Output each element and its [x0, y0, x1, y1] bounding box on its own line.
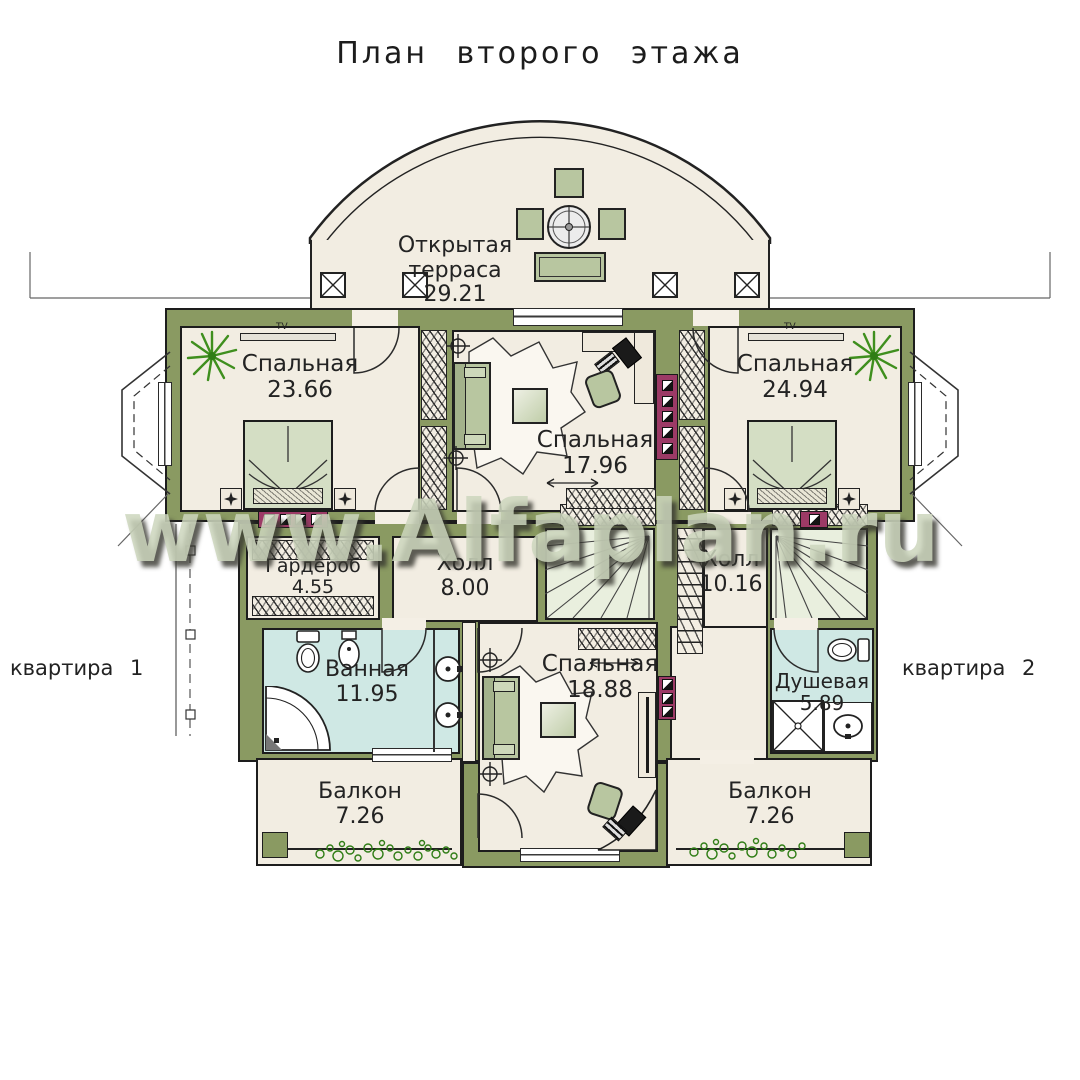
column-icon: [320, 272, 346, 298]
balcony-pier: [844, 832, 870, 858]
sofa-icon: [453, 362, 491, 450]
door-opening: [693, 310, 739, 326]
balcony-plants-icon: [686, 834, 836, 864]
closet-icon: [578, 628, 656, 650]
column-icon: [734, 272, 760, 298]
side-table-icon: [540, 702, 576, 738]
closet-icon: [252, 596, 374, 616]
terrace-chair-icon: [598, 208, 626, 240]
tv-icon: [240, 333, 336, 341]
window: [513, 308, 623, 326]
window: [372, 748, 452, 762]
apartment1-label: квартира 1: [10, 656, 143, 680]
room-label-bedroom-center-top: Спальная 17.96: [495, 428, 695, 480]
closet-icon: [421, 330, 447, 420]
room-label-shower: Душевая 5.89: [772, 670, 872, 715]
mini-hall: [462, 622, 476, 762]
room-label-balcony-left: Балкон 7.26: [290, 780, 430, 829]
column-icon: [652, 272, 678, 298]
tv-label: TV: [276, 322, 288, 332]
desk-icon: [634, 332, 654, 404]
bay-window: [158, 382, 172, 466]
balcony-pier: [262, 832, 288, 858]
door-opening: [774, 618, 818, 630]
room-label-bedroom-right: Спальная 24.94: [690, 352, 900, 404]
watermark: www.Alfaplan.ru: [122, 482, 941, 582]
apartment2-label: квартира 2: [902, 656, 1035, 680]
page-title: План второго этажа: [0, 36, 1080, 71]
bay-window: [908, 382, 922, 466]
floor-plan-canvas: План второго этажа: [0, 0, 1080, 1080]
room-label-bathroom: Ванная 11.95: [292, 658, 442, 707]
tv-icon: [748, 333, 844, 341]
door-opening: [352, 310, 398, 326]
round-table-icon: [546, 204, 592, 250]
desk-icon: [638, 692, 656, 778]
terrace-chair-icon: [554, 168, 584, 198]
door-opening: [700, 750, 754, 764]
room-label-terrace: Открытая терраса 29.21: [380, 234, 530, 308]
terrace-bench-icon: [534, 252, 606, 282]
room-label-bedroom-left: Спальная 23.66: [195, 352, 405, 404]
tv-label: TV: [784, 322, 796, 332]
room-label-bedroom-center-bottom: Спальная 18.88: [500, 652, 700, 704]
side-table-icon: [512, 388, 548, 424]
door-opening: [382, 618, 426, 630]
toilet-icon: [826, 634, 870, 666]
balcony-plants-icon: [312, 836, 462, 866]
room-label-balcony-right: Балкон 7.26: [700, 780, 840, 829]
